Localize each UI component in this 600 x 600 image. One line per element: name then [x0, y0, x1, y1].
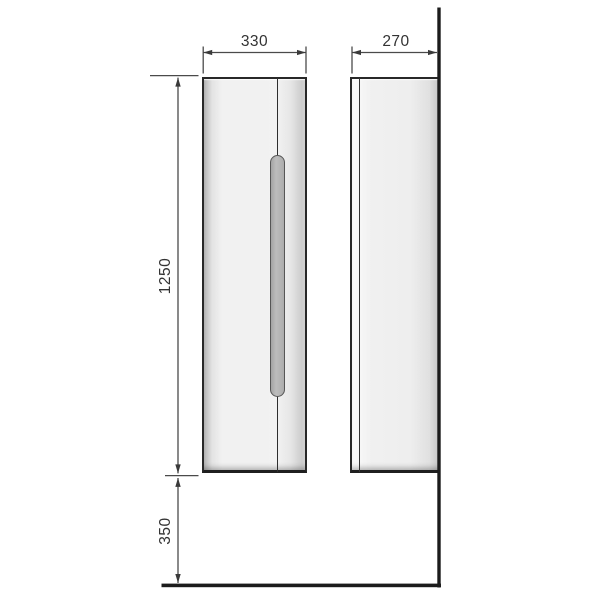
arrow-left-icon	[352, 50, 361, 55]
cabinet-front-view	[202, 77, 307, 473]
dimension-front-width	[203, 47, 306, 74]
arrow-left-icon	[203, 50, 212, 55]
floor-line	[162, 584, 442, 588]
drawing-canvas: 330 270 1250 350	[0, 0, 600, 600]
arrow-right-icon	[428, 50, 437, 55]
side-depth-label: 270	[382, 33, 409, 51]
arrow-up-icon	[175, 478, 180, 487]
arrow-right-icon	[297, 50, 306, 55]
cabinet-height-label: 1250	[157, 257, 175, 293]
side-door-edge-line	[359, 78, 361, 472]
arrow-up-icon	[175, 78, 180, 87]
dimension-floor-clearance	[175, 478, 180, 583]
floor-clearance-label: 350	[157, 517, 175, 544]
arrow-down-icon	[175, 574, 180, 583]
cabinet-side-view	[350, 77, 438, 473]
front-width-label: 330	[241, 33, 268, 51]
door-handle-groove	[270, 155, 285, 397]
dimension-side-depth	[352, 47, 437, 74]
arrow-down-icon	[175, 464, 180, 473]
